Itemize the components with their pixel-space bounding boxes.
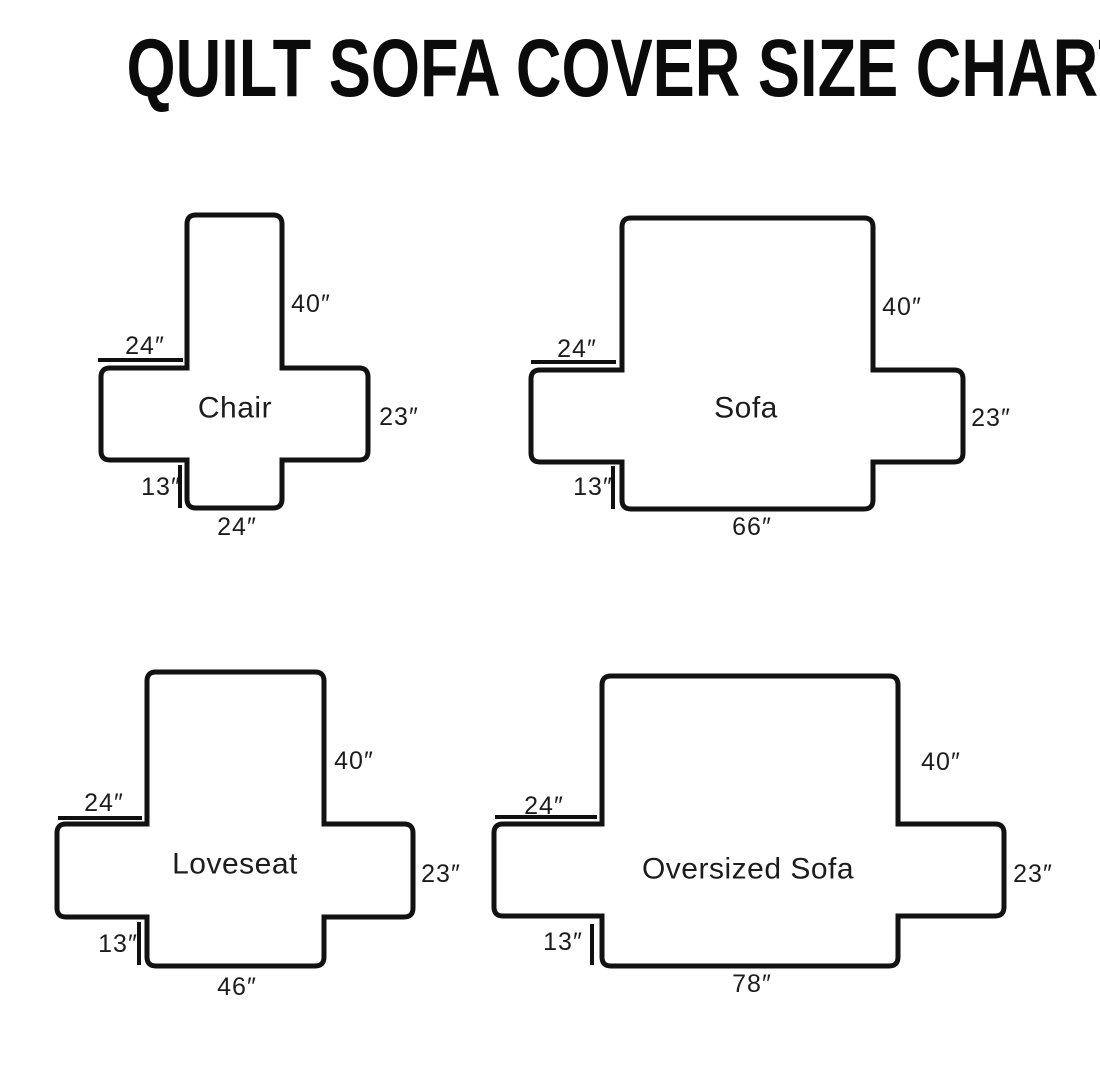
- chair-arm-top-width-label: 24″: [125, 332, 165, 360]
- loveseat-arm-top-width-label: 24″: [84, 789, 124, 817]
- chair-front-skirt-label: 13″: [141, 473, 181, 501]
- quilt-sofa-cover-size-chart: QUILT SOFA COVER SIZE CHART Chair 40″ 24…: [0, 0, 1100, 1092]
- loveseat-back-height-label: 40″: [334, 747, 374, 775]
- loveseat-front-skirt-label: 13″: [98, 930, 138, 958]
- oversized-sofa-seat-depth-label: 23″: [1013, 860, 1053, 888]
- oversized-sofa-back-height-label: 40″: [921, 748, 961, 776]
- oversized-sofa-front-skirt-label: 13″: [543, 928, 583, 956]
- sofa-back-height-label: 40″: [882, 293, 922, 321]
- loveseat-seat-depth-label: 23″: [421, 860, 461, 888]
- chair-back-height-label: 40″: [291, 290, 331, 318]
- loveseat-name-label: Loveseat: [172, 848, 298, 881]
- sofa-name-label: Sofa: [714, 392, 778, 425]
- chair-seat-depth-label: 23″: [379, 403, 419, 431]
- sofa-arm-top-width-label: 24″: [557, 335, 597, 363]
- oversized-sofa-outline: [494, 676, 1004, 966]
- chair-base-width-label: 24″: [217, 513, 257, 541]
- loveseat-base-width-label: 46″: [217, 973, 257, 1001]
- oversized-sofa-base-width-label: 78″: [732, 970, 772, 998]
- sofa-base-width-label: 66″: [732, 513, 772, 541]
- chair-name-label: Chair: [198, 392, 272, 425]
- sofa-front-skirt-label: 13″: [573, 473, 613, 501]
- oversized-sofa-arm-top-width-label: 24″: [524, 792, 564, 820]
- diagram-canvas: Chair 40″ 24″ 23″ 13″ 24″ Sofa 40″ 24″ 2…: [0, 0, 1100, 1092]
- oversized-sofa-name-label: Oversized Sofa: [642, 853, 854, 886]
- sofa-seat-depth-label: 23″: [971, 404, 1011, 432]
